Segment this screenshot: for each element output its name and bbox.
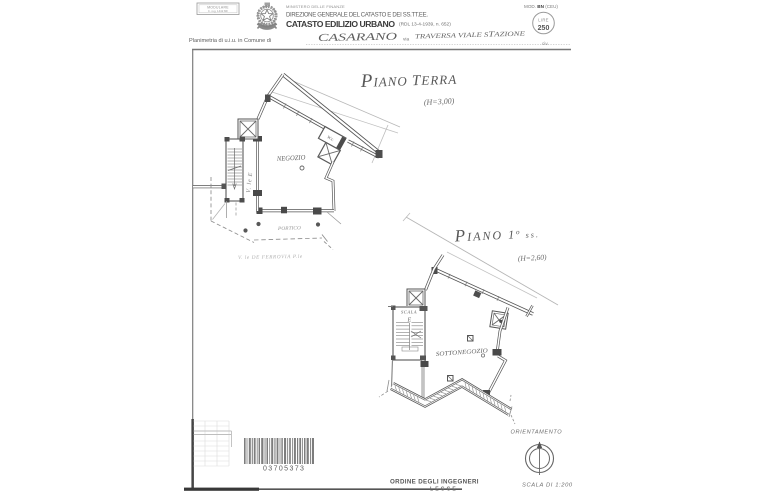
svg-text:civ.: civ. [542,41,549,46]
svg-text:SCALA DI 1:200: SCALA DI 1:200 [522,483,573,489]
svg-text:ORIENTAMENTO: ORIENTAMENTO [511,430,563,436]
svg-text:LECCE: LECCE [430,487,458,492]
svg-text:(H=2,60): (H=2,60) [518,252,548,263]
svg-text:CATASTO EDILIZIO URBANO: CATASTO EDILIZIO URBANO [286,19,395,29]
svg-text:PORTICO: PORTICO [277,226,302,232]
svg-text:03705373: 03705373 [263,466,305,473]
svg-text:SCALA: SCALA [401,310,417,315]
svg-text:NEGOZIO: NEGOZIO [276,154,306,164]
svg-text:LIRE: LIRE [538,18,549,23]
svg-text:(RDL 13-4-1939, n. 652): (RDL 13-4-1939, n. 652) [399,22,451,28]
svg-text:250: 250 [538,25,550,32]
svg-text:Planimetria di u.i.u. in Comun: Planimetria di u.i.u. in Comune di [189,38,271,44]
svg-text:ORDINE DEGLI INGEGNERI: ORDINE DEGLI INGEGNERI [390,479,479,486]
svg-text:via: via [403,37,409,43]
svg-text:V. le DE FERROVIA P.le: V. le DE FERROVIA P.le [238,254,303,261]
svg-text:CASARANO: CASARANO [318,32,398,44]
svg-text:MINISTERO DELLE FINANZE: MINISTERO DELLE FINANZE [286,4,345,9]
svg-text:C. reg. 1442 MF: C. reg. 1442 MF [208,9,228,13]
svg-text:MOD. BN (CEU): MOD. BN (CEU) [524,4,558,9]
svg-text:DIREZIONE GENERALE DEL CATASTO: DIREZIONE GENERALE DEL CATASTO E DEI SS.… [286,13,428,19]
svg-text:(H=3,00): (H=3,00) [424,96,455,107]
